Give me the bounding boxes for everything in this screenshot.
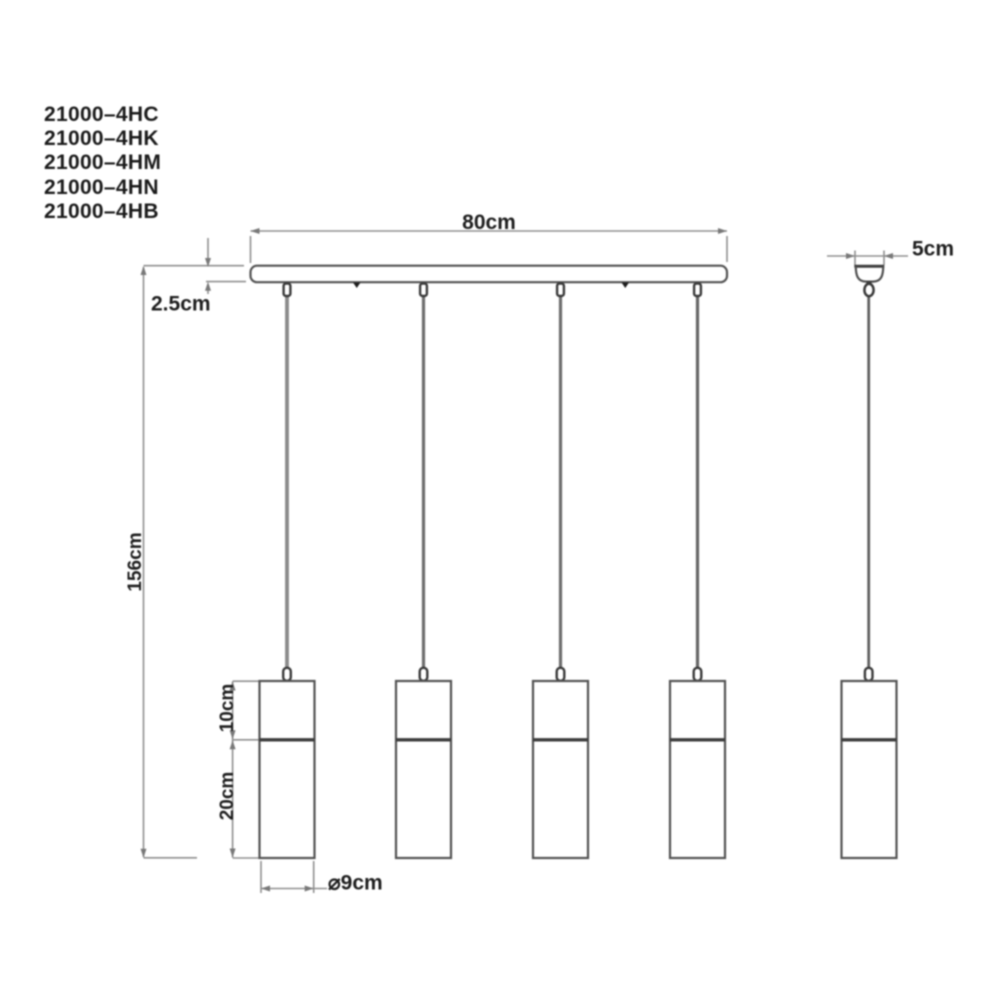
svg-text:20cm: 20cm	[217, 772, 238, 821]
svg-text:⌀9cm: ⌀9cm	[328, 872, 383, 895]
svg-text:80cm: 80cm	[462, 211, 516, 234]
svg-text:5cm: 5cm	[912, 238, 954, 261]
svg-text:10cm: 10cm	[217, 684, 238, 733]
svg-text:156cm: 156cm	[125, 532, 146, 591]
svg-text:2.5cm: 2.5cm	[151, 293, 211, 316]
